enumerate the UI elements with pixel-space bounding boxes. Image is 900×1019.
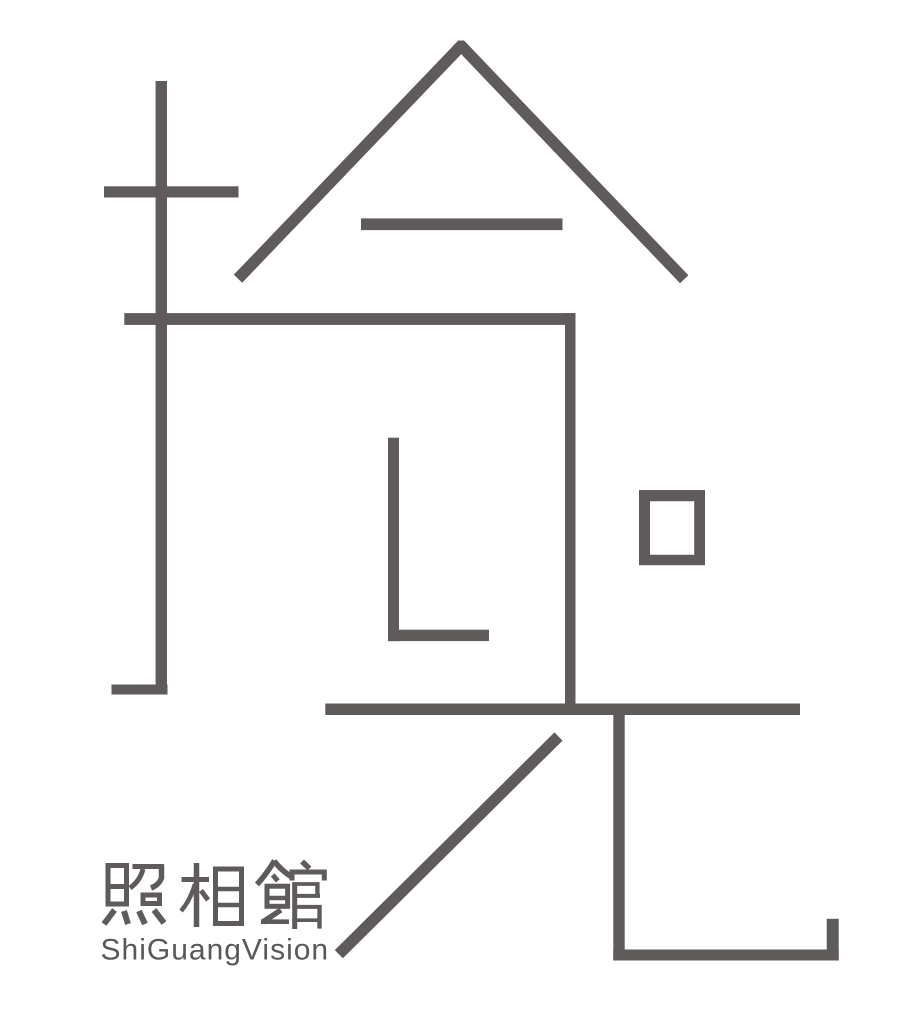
svg-text:ShiGuangVision: ShiGuangVision	[101, 934, 330, 967]
